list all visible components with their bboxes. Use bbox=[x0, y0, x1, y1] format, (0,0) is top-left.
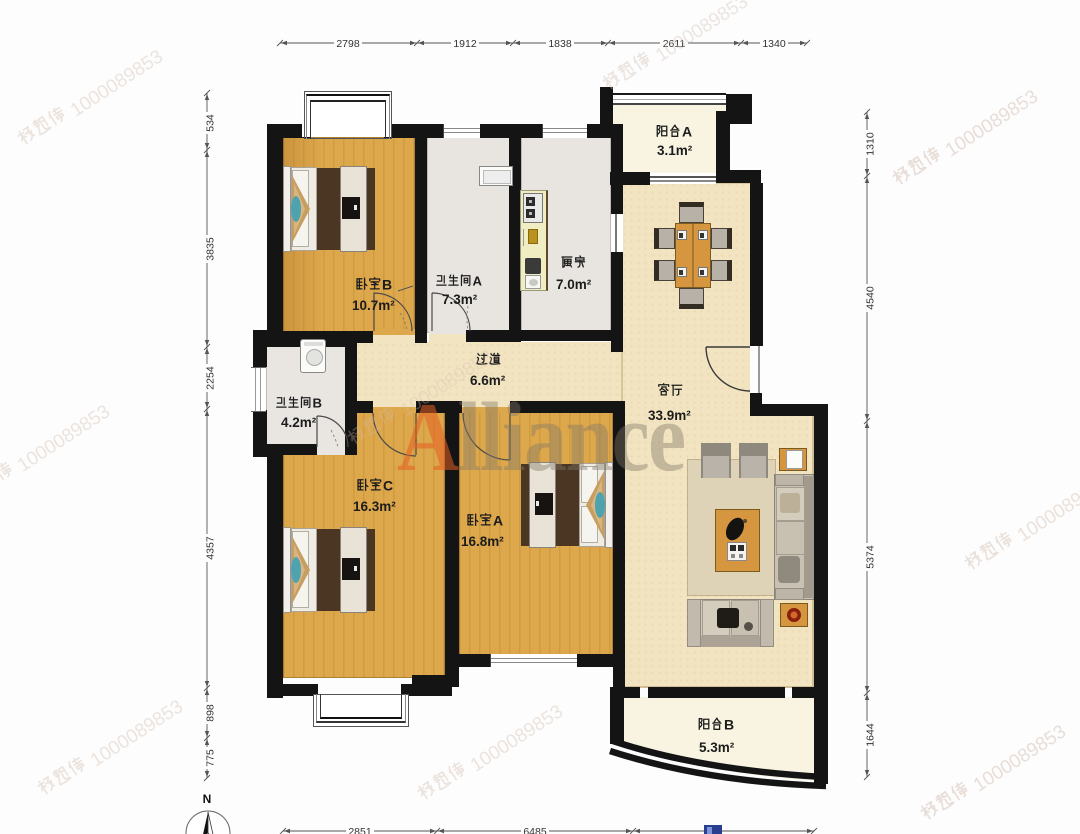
svg-text:A: A bbox=[682, 123, 692, 139]
svg-text:4357: 4357 bbox=[204, 536, 216, 560]
svg-text:A: A bbox=[493, 512, 503, 528]
svg-text:1000089853: 1000089853 bbox=[67, 46, 167, 121]
svg-text:1000089853: 1000089853 bbox=[87, 696, 187, 771]
svg-text:4540: 4540 bbox=[864, 286, 876, 310]
svg-text:1644: 1644 bbox=[864, 723, 876, 747]
svg-text:B: B bbox=[724, 716, 734, 732]
svg-text:1000089853: 1000089853 bbox=[14, 401, 114, 476]
svg-text:1310: 1310 bbox=[864, 132, 876, 156]
svg-text:1912: 1912 bbox=[453, 38, 477, 50]
svg-text:16.3m²: 16.3m² bbox=[353, 499, 396, 514]
svg-text:6485: 6485 bbox=[523, 826, 547, 834]
svg-text:1000089853: 1000089853 bbox=[970, 721, 1070, 796]
svg-text:2254: 2254 bbox=[204, 366, 216, 390]
svg-text:A: A bbox=[473, 274, 483, 289]
svg-text:10.7m²: 10.7m² bbox=[352, 298, 395, 313]
svg-text:5.3m²: 5.3m² bbox=[699, 740, 735, 755]
svg-text:3835: 3835 bbox=[204, 237, 216, 261]
svg-text:C: C bbox=[383, 477, 393, 493]
svg-text:5374: 5374 bbox=[864, 545, 876, 569]
svg-text:898: 898 bbox=[204, 704, 216, 722]
svg-text:16.8m²: 16.8m² bbox=[461, 534, 504, 549]
svg-text:775: 775 bbox=[204, 749, 216, 767]
svg-text:1000089853: 1000089853 bbox=[1014, 471, 1080, 546]
svg-text:3.1m²: 3.1m² bbox=[657, 143, 693, 158]
svg-text:4.2m²: 4.2m² bbox=[281, 415, 317, 430]
svg-text:534: 534 bbox=[204, 114, 216, 132]
svg-text:7.0m²: 7.0m² bbox=[556, 277, 592, 292]
svg-text:B: B bbox=[313, 396, 322, 411]
svg-text:1340: 1340 bbox=[762, 38, 786, 50]
svg-text:1000089853: 1000089853 bbox=[467, 701, 567, 776]
svg-text:1000089853: 1000089853 bbox=[942, 86, 1042, 161]
svg-text:2798: 2798 bbox=[336, 38, 360, 50]
svg-text:1838: 1838 bbox=[548, 38, 572, 50]
svg-text:7.3m²: 7.3m² bbox=[442, 292, 478, 307]
svg-text:1000089853: 1000089853 bbox=[652, 0, 752, 66]
svg-text:2851: 2851 bbox=[348, 826, 372, 834]
svg-text:N: N bbox=[203, 792, 212, 806]
svg-text:B: B bbox=[382, 276, 392, 292]
